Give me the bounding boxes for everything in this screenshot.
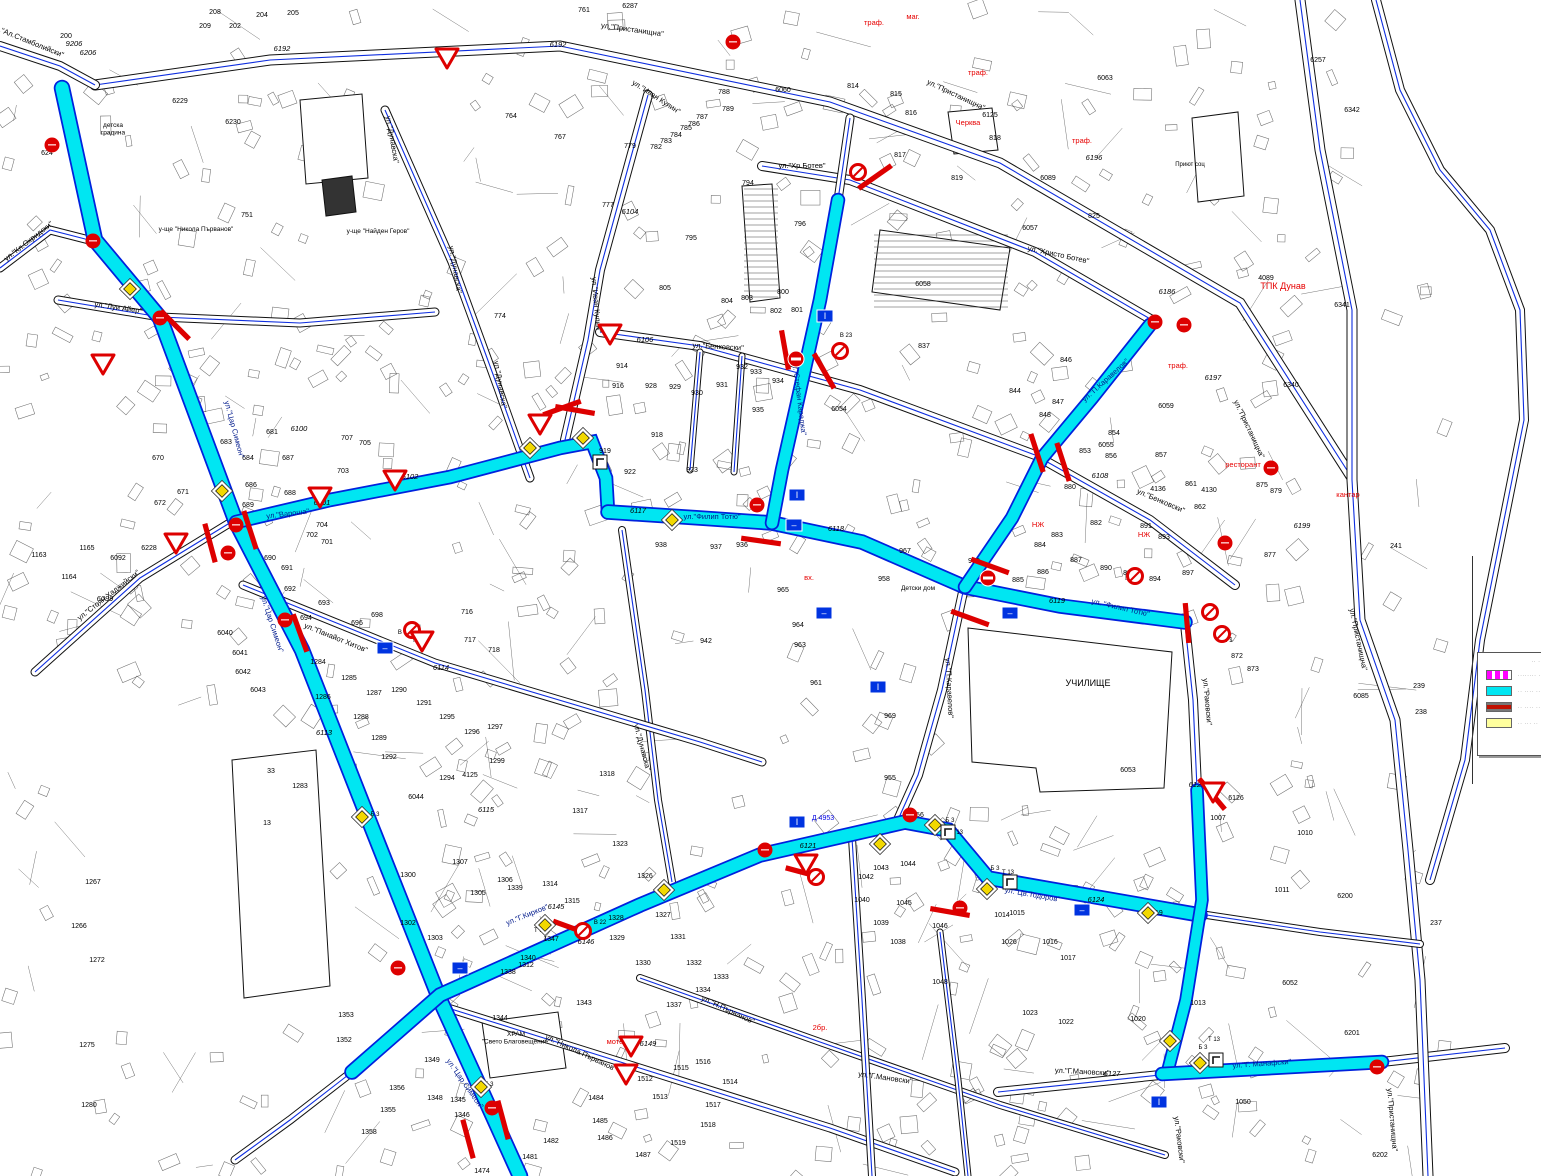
yield-sign-icon (529, 415, 551, 434)
parcel-number: 890 (1100, 565, 1112, 572)
parcel-number: 801 (791, 307, 803, 314)
parcel-number: 1332 (686, 960, 702, 967)
info-sign-glyph: I (796, 817, 799, 827)
parcel-number: 687 (282, 455, 294, 462)
red-poi-label: НЖ (1032, 520, 1044, 529)
parcel-number: 1487 (635, 1152, 651, 1159)
street-number: 6100 (291, 424, 309, 433)
parcel-number: 701 (321, 539, 333, 546)
parcel-number: 893 (1158, 534, 1170, 541)
legend-item-label: ·· ··· ·· (1518, 721, 1539, 726)
parcel-number: 916 (612, 383, 624, 390)
parcel-number: 1328 (608, 915, 624, 922)
street-name: ул."Раковски" (1172, 1116, 1187, 1164)
parcel-number: 1289 (371, 735, 387, 742)
street-name: ул."Пристанищна" (1232, 398, 1267, 459)
parcel-number: 1348 (427, 1095, 443, 1102)
parcel-number: 1015 (1009, 910, 1025, 917)
area-label: детскаградина (101, 122, 126, 137)
parcel-number: 928 (645, 383, 657, 390)
street-name: ул."Пристанищна" (926, 77, 987, 112)
parcel-number: 785 (680, 125, 692, 132)
parcel-number: 1485 (592, 1118, 608, 1125)
parcel-number: 696 (351, 620, 363, 627)
parcel-number: 4125 (462, 772, 478, 779)
street-number: 6199 (1294, 521, 1312, 530)
street-number: 6206 (80, 48, 98, 57)
parcel-number: 848 (1039, 412, 1051, 419)
street-name: ул."Филип Тотю" (683, 512, 740, 521)
parcel-number: 1515 (673, 1065, 689, 1072)
street-number: 6197 (1205, 373, 1223, 382)
yield-sign-icon (92, 355, 114, 374)
legend-header: ·· ····· (1486, 659, 1541, 664)
street-name: ул."Дунавска" (447, 245, 464, 294)
street-pristanishtna-right (1300, 0, 1428, 1176)
parcel-number: 1349 (424, 1057, 440, 1064)
parcel-number: 690 (264, 555, 276, 562)
parcel-number: 884 (1034, 542, 1046, 549)
red-poi-label: кантар (1336, 490, 1359, 499)
parcel-number: 816 (905, 110, 917, 117)
parcel-number: 873 (1247, 666, 1259, 673)
parcel-number: 239 (1413, 683, 1425, 690)
parcel-number: 818 (989, 135, 1001, 142)
parcel-number: 805 (659, 285, 671, 292)
parcel-number: 788 (718, 89, 730, 96)
junction-plate-icon (1209, 1053, 1223, 1067)
parcel-number: 969 (884, 713, 896, 720)
streets (0, 0, 1524, 1176)
parcel-number: 764 (505, 113, 517, 120)
parcel-number: 787 (696, 114, 708, 121)
info-sign-glyph: – (821, 608, 826, 618)
street-number: 6149 (640, 1039, 658, 1048)
info-sign-glyph: – (1007, 608, 1012, 618)
parcel-number: 1297 (487, 724, 503, 731)
parcel-number: 1330 (635, 960, 651, 967)
parcel-number: 1163 (31, 552, 46, 559)
parcel-number: 891 (1140, 523, 1152, 530)
parcel-number: 1340 (520, 955, 536, 962)
parcel-number: 885 (1012, 577, 1024, 584)
parcel-number: 1026 (1001, 939, 1017, 946)
red-poi-label: Черква (956, 118, 982, 127)
street-number: 9206 (66, 39, 84, 48)
parcel-number: 817 (894, 152, 906, 159)
parcel-number: 1355 (380, 1107, 396, 1114)
parcel-number: 1352 (336, 1037, 352, 1044)
parcel-number: 705 (359, 440, 371, 447)
parcel-number: 237 (1430, 920, 1442, 927)
parcel-number: 1048 (932, 979, 948, 986)
street-name: ул."Раковски" (1201, 678, 1214, 726)
parcel-number: 800 (777, 289, 789, 296)
parcel-number: 872 (1231, 653, 1243, 660)
parcel-number: 6052 (1282, 980, 1298, 987)
parcel-number: 825 (1088, 213, 1100, 220)
parcel-number: 6229 (172, 98, 188, 105)
parcel-number: 1317 (572, 808, 588, 815)
parcel-number: 814 (847, 83, 859, 90)
street-number: 6196 (1086, 153, 1104, 162)
sign-ref-label: Б 3 (946, 818, 956, 824)
parcel-number: 693 (318, 600, 330, 607)
parcel-number: 1040 (854, 897, 870, 904)
parcel-number: 1292 (381, 754, 397, 761)
parcel-number: 929 (669, 384, 681, 391)
parcel-number: 963 (794, 642, 806, 649)
parcel-number: 241 (1390, 543, 1402, 550)
parcel-number: 796 (794, 221, 806, 228)
parcel-number: 1333 (713, 974, 729, 981)
parcel-number: 6126 (1228, 795, 1244, 802)
street-number: 6119 (1049, 596, 1066, 605)
building (872, 230, 1010, 310)
parcel-number: 777 (602, 202, 614, 209)
parcel-number: 935 (752, 407, 764, 414)
parcel-number: 1020 (1130, 1016, 1146, 1023)
magenta-dashed-line-swatch (1486, 670, 1512, 680)
parcel-number: 1043 (873, 865, 889, 872)
parcel-number: 803 (741, 295, 753, 302)
info-sign-glyph: I (877, 682, 880, 692)
building (1192, 112, 1244, 202)
parcel-number: 205 (287, 10, 299, 17)
parcel-number: 6054 (831, 406, 847, 413)
parcel-number: 1300 (400, 872, 416, 879)
parcel-number: 938 (655, 542, 667, 549)
info-sign-glyph: I (1158, 1097, 1161, 1107)
parcel-number: 1327 (655, 912, 671, 919)
parcel-number: 1346 (454, 1112, 470, 1119)
parcel-number: 1347 (543, 936, 559, 943)
building (322, 176, 356, 216)
parcel-number: 6200 (1337, 893, 1353, 900)
street-highlighted-stefan-karadzha (772, 200, 838, 523)
parcel-number: 880 (1064, 484, 1076, 491)
blue-labels: Д 4953 (812, 815, 834, 822)
parcel-number: 1266 (71, 923, 87, 930)
parcel-number: 6044 (408, 794, 424, 801)
parcel-number: 879 (1270, 488, 1282, 495)
parcel-number: 930 (691, 390, 703, 397)
parcel-number: 718 (488, 647, 500, 654)
street-number: 6106 (637, 335, 655, 344)
parcel-number: 1007 (1210, 815, 1226, 822)
sign-ref-label: Б 3 (1199, 1045, 1209, 1051)
parcel-number: 933 (750, 369, 762, 376)
parcel-number: 844 (1009, 388, 1021, 395)
parcel-number: 1486 (597, 1135, 613, 1142)
parcel-number: 1343 (576, 1000, 592, 1007)
red-poi-label: ТПК Дунав (1260, 281, 1305, 291)
legend-item: ········ ···· (1486, 670, 1541, 680)
parcel-number: 1272 (89, 957, 105, 964)
parcel-number: 6341 (1334, 302, 1350, 309)
parcel-number: 761 (578, 7, 590, 14)
area-label: Детски дом (901, 585, 936, 592)
parcel-number: 1338 (500, 969, 516, 976)
info-sign-glyph: – (791, 520, 796, 530)
parcel-number: 6230 (225, 119, 241, 126)
parcel-number: 6340 (1283, 382, 1299, 389)
junction-plate-icon (593, 455, 607, 469)
blue-ref-label: Д 4953 (812, 815, 834, 822)
buildings (232, 94, 1244, 1078)
parcel-number: 6042 (235, 669, 251, 676)
red-poi-label: 2бр. (813, 1023, 828, 1032)
parcel-number: 707 (341, 435, 353, 442)
parcel-number: 1286 (315, 694, 331, 701)
parcel-number: 1356 (389, 1085, 405, 1092)
road-closure-bar-icon (460, 1119, 475, 1159)
red-poi-label: траф. (968, 68, 988, 77)
parcel-number: 1331 (670, 934, 686, 941)
sign-ref-label: В 22 (594, 920, 607, 926)
area-label: у-ще "Никола Първанов" (159, 226, 234, 233)
parcel-number: 804 (721, 298, 733, 305)
street-number: 6115 (478, 805, 495, 814)
parcel-number: 942 (700, 638, 712, 645)
parcel-number: 1038 (890, 939, 906, 946)
parcel-number: 703 (337, 468, 349, 475)
parcel-number: 767 (554, 134, 566, 141)
parcel-number: 1312 (518, 962, 534, 969)
street-number: 6104 (622, 207, 639, 216)
parcel-number: 784 (670, 132, 682, 139)
parcel-number: 894 (1149, 576, 1161, 583)
parcel-number: 1518 (700, 1122, 716, 1129)
building (968, 628, 1172, 792)
parcel-number: 967 (899, 548, 911, 555)
parcel-number: 795 (685, 235, 697, 242)
parcel-number: 958 (878, 576, 890, 583)
street-dunavska (385, 110, 530, 478)
parcel-number: 789 (722, 106, 734, 113)
info-sign-glyph: I (824, 311, 827, 321)
sign-ref-label: В 23 (840, 333, 853, 339)
parcel-number: 33 (267, 768, 275, 775)
parcel-number: 1318 (599, 771, 615, 778)
parcel-number: 862 (1194, 504, 1206, 511)
parcel-number: 686 (245, 482, 257, 489)
parcel-number: 936 (736, 542, 748, 549)
street-name: ул."П.Каравелов" (1080, 356, 1131, 403)
parcel-number: 1519 (670, 1140, 686, 1147)
parcel-number: 1291 (416, 700, 432, 707)
parcel-number: 1010 (1297, 830, 1313, 837)
parcel-number: 4130 (1201, 487, 1217, 494)
parcel-number: 897 (1182, 570, 1194, 577)
legend-item: ·· ···· ·· (1486, 702, 1541, 712)
parcel-number: 6060 (775, 87, 791, 94)
info-sign-glyph: – (382, 643, 387, 653)
parcel-number: 1295 (439, 714, 455, 721)
parcel-number: 922 (624, 469, 636, 476)
parcel-number: 1267 (85, 879, 101, 886)
parcel-number: 1050 (1235, 1099, 1251, 1106)
parcel-number: 691 (281, 565, 293, 572)
parcel-number: 698 (371, 612, 383, 619)
parcel-number: 1315 (564, 898, 580, 905)
parcel-number: 1512 (637, 1076, 653, 1083)
building (232, 750, 330, 998)
parcel-number: 923 (686, 467, 698, 474)
cyan-line-swatch (1486, 686, 1512, 696)
parcel-number: 919 (599, 448, 611, 455)
parcel-number: 1482 (543, 1138, 559, 1145)
parcel-number: 1017 (1060, 955, 1076, 962)
parcel-number: 1280 (81, 1102, 97, 1109)
parcel-number: 6342 (1344, 107, 1360, 114)
parcel-number: 1285 (341, 675, 357, 682)
parcel-number: 1307 (452, 859, 468, 866)
parcel-number: 1326 (637, 873, 653, 880)
parcel-number: 1484 (588, 1095, 604, 1102)
parcel-number: 882 (1090, 520, 1102, 527)
yield-sign-icon (436, 49, 458, 68)
street-name: ул."П.Каравелов" (943, 658, 955, 719)
parcel-number: 702 (306, 532, 318, 539)
parcel-number: 857 (1155, 452, 1167, 459)
parcel-number: 209 (199, 23, 211, 30)
parcel-number: 1294 (439, 775, 455, 782)
street-number: 6121 (800, 841, 817, 850)
parcel-number: 965 (777, 587, 789, 594)
parcel-number: 238 (1415, 709, 1427, 716)
street-name: ул."Иван Кулин" (631, 78, 683, 116)
parcel-number: 964 (792, 622, 804, 629)
parcel-number: 1358 (361, 1129, 377, 1136)
parcel-number: 877 (1264, 552, 1276, 559)
street-name: ул."Хр.Ботев" (778, 161, 825, 170)
parcel-number: 914 (616, 363, 628, 370)
parcel-number: 1474 (474, 1168, 490, 1175)
parcel-number: 1296 (464, 729, 480, 736)
parcel-number: 1302 (400, 920, 416, 927)
street-number: 6118 (828, 524, 845, 533)
parcel-number: 6041 (232, 650, 248, 657)
parcel-number: 13 (263, 820, 271, 827)
parcel-number: 6085 (1353, 693, 1369, 700)
red-poi-label: маг. (906, 12, 919, 21)
parcel-number: 6055 (1098, 442, 1114, 449)
street-number: 6108 (1092, 471, 1110, 480)
legend-item-label: ·· ···· ·· (1518, 705, 1541, 710)
parcel-number: 1329 (609, 935, 625, 942)
street-number: 6192 (550, 40, 568, 49)
parcel-number: 6287 (622, 3, 638, 10)
parcel-number: 6053 (1120, 767, 1136, 774)
parcel-number: 716 (461, 609, 473, 616)
parcel-number: 1345 (450, 1097, 466, 1104)
map-viewport[interactable]: 2002022042052082097516229623062462876257… (0, 0, 1541, 1176)
parcel-number: 1014 (994, 912, 1010, 919)
red-poi-label: вх. (804, 573, 814, 582)
red-poi-label: траф. (864, 18, 884, 27)
parcel-number: 1339 (507, 885, 523, 892)
street-casing-pristanishtna-right (1300, 0, 1428, 1176)
parcel-number: 1039 (873, 920, 889, 927)
parcel-number: 782 (650, 144, 662, 151)
legend-item-label: ·· ···· ··· (1518, 689, 1541, 694)
parcel-number: 1046 (932, 923, 948, 930)
parcel-number: 937 (710, 544, 722, 551)
parcel-number: 1290 (391, 687, 407, 694)
parcel-number: 1517 (705, 1102, 721, 1109)
parcel-number: 1022 (1058, 1019, 1074, 1026)
parcel-number: 961 (810, 680, 822, 687)
parcel-number: 204 (256, 12, 268, 19)
parcel-number: 1323 (612, 841, 628, 848)
parcel-number: 6125 (982, 112, 998, 119)
parcel-number: 6063 (1097, 75, 1113, 82)
parcel-number: 846 (1060, 357, 1072, 364)
parcel-number: 688 (284, 490, 296, 497)
parcel-number: 6043 (250, 687, 266, 694)
parcel-number: 918 (651, 432, 663, 439)
building (300, 94, 368, 184)
parcel-number: 1353 (338, 1012, 354, 1019)
junction-plate-icon (1003, 875, 1017, 889)
red-line-swatch (1486, 702, 1512, 712)
parcel-number: 1042 (858, 874, 874, 881)
parcel-number: 1011 (1274, 887, 1289, 894)
parcel-number: 1305 (470, 890, 486, 897)
parcel-number: 681 (266, 429, 278, 436)
parcel-number: 1514 (722, 1079, 738, 1086)
map-canvas[interactable]: 2002022042052082097516229623062462876257… (0, 0, 1541, 1176)
legend-item: ·· ···· ··· (1486, 686, 1541, 696)
parcel-number: 1288 (353, 714, 369, 721)
street-name: ул."Кл.Охридски" (2, 219, 55, 263)
map-frame-line (1472, 556, 1473, 784)
parcel-number: 1513 (652, 1094, 668, 1101)
waterline-pristanishtna-right (1300, 0, 1428, 1176)
parcel-number: 670 (152, 455, 164, 462)
street-name: ул."Пристанищна" (1385, 1088, 1400, 1152)
parcel-number: 1516 (695, 1059, 711, 1066)
street-number: 6117 (630, 506, 647, 515)
parcel-number: 6201 (1344, 1030, 1360, 1037)
area-label: Приют соц (1175, 162, 1205, 168)
parcel-number: 6040 (217, 630, 233, 637)
parcel-number: 1013 (1190, 1000, 1206, 1007)
parcel-number: 751 (241, 212, 253, 219)
parcel-number: 883 (1051, 532, 1063, 539)
parcel-number: 6059 (1158, 403, 1174, 410)
parcel-number: 704 (316, 522, 328, 529)
parcel-number: 6092 (110, 555, 126, 562)
info-sign-glyph: – (457, 963, 462, 973)
parcel-number: 854 (1108, 430, 1120, 437)
red-poi-label: НЖ (1138, 530, 1150, 539)
sign-ref-label: Т 13 (1208, 1037, 1221, 1043)
parcel-number: 6202 (1372, 1152, 1388, 1159)
info-sign-glyph: – (1079, 905, 1084, 915)
street-name: ул."Пристанищна" (600, 21, 664, 39)
parcel-number: 931 (716, 382, 728, 389)
junction-plate-icon (941, 825, 955, 839)
parcel-number: 783 (660, 138, 672, 145)
parcel-number: 774 (494, 313, 506, 320)
parcel-number: 717 (464, 637, 476, 644)
sign-ref-label: Б 3 (991, 866, 1001, 872)
parcel-number: 1164 (61, 574, 76, 581)
parcel-number: 934 (772, 378, 784, 385)
parcel-number: 683 (220, 439, 232, 446)
